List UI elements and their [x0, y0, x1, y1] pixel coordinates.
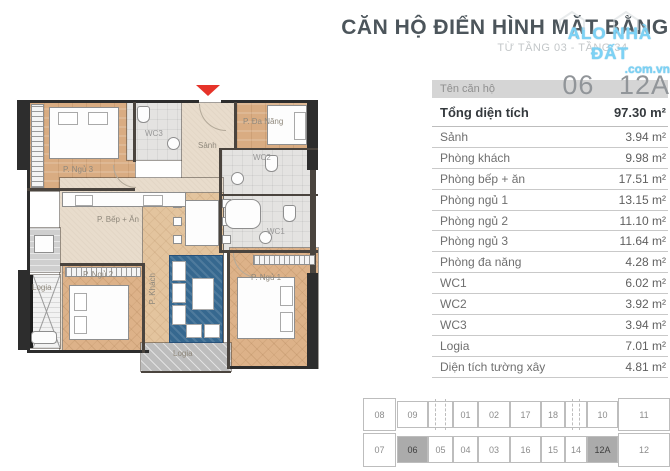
- table-row: Phòng khách9.98 m²: [432, 148, 668, 169]
- wall: [227, 250, 230, 369]
- wall: [27, 100, 199, 103]
- table-row: Phòng đa năng4.28 m²: [432, 252, 668, 273]
- dining-table: [185, 200, 219, 246]
- wardrobe: [31, 104, 44, 188]
- key-plan-cell: 07: [363, 433, 396, 467]
- chair: [173, 217, 182, 226]
- label-wc1: WC1: [267, 227, 285, 236]
- room-label: Phòng bếp + ăn: [440, 169, 525, 189]
- room-label: WC3: [440, 315, 467, 335]
- key-plan-cell: 12: [618, 433, 670, 467]
- table-row: WC16.02 m²: [432, 273, 668, 294]
- label-wc3: WC3: [145, 129, 163, 138]
- unit-number-2: 12A: [619, 72, 670, 99]
- key-plan-cell: 09: [397, 401, 428, 428]
- room-label: Phòng ngủ 1: [440, 190, 508, 210]
- watermark: ALO NHÀ ĐẤT .com.vn: [550, 24, 670, 76]
- key-plan-cell: 01: [453, 401, 478, 428]
- wall: [234, 102, 237, 150]
- table-row: Phòng ngủ 113.15 m²: [432, 190, 668, 211]
- key-plan-cell: 17: [510, 401, 541, 428]
- room-label: Phòng ngủ 2: [440, 211, 508, 231]
- wall: [27, 350, 149, 353]
- key-plan-cell: 12A: [587, 436, 618, 463]
- key-plan-cell: 06: [397, 436, 428, 463]
- key-plan-cell: 04: [453, 436, 478, 463]
- room-area: 9.98 m²: [625, 148, 666, 168]
- wall: [307, 273, 318, 369]
- sink: [167, 137, 180, 150]
- chair: [222, 235, 231, 244]
- bathtub: [225, 199, 261, 229]
- key-plan-cell: 11: [618, 398, 670, 431]
- label-bedroom-3: P. Ngủ 3: [63, 165, 93, 174]
- room-area: 4.81 m²: [625, 357, 666, 377]
- table-row: Diện tích tường xây4.81 m²: [432, 357, 668, 378]
- table-row: Phòng bếp + ăn17.51 m²: [432, 169, 668, 190]
- table-row: Phòng ngủ 311.64 m²: [432, 231, 668, 252]
- key-plan-corridor-cell: [565, 401, 587, 428]
- label-bedroom-2: P. Ngủ 2: [83, 270, 113, 279]
- room-label: Diện tích tường xây: [440, 357, 545, 377]
- label-logia-bottom: Logia: [173, 349, 193, 358]
- total-area-row: Tổng diện tích 97.30 m²: [432, 100, 668, 127]
- key-plan-cell: 05: [428, 436, 453, 463]
- toilet: [283, 205, 296, 222]
- washing-machine: [34, 235, 54, 253]
- room-label: Phòng khách: [440, 148, 510, 168]
- room-label: WC1: [440, 273, 467, 293]
- wall: [142, 263, 145, 353]
- label-multi-purpose: P. Đa Năng: [243, 117, 283, 126]
- room-area: 13.15 m²: [619, 190, 666, 210]
- room-label: WC2: [440, 294, 467, 314]
- key-plan-cell: 03: [478, 436, 510, 463]
- bed-double: [49, 107, 119, 159]
- key-plan-cell: 18: [541, 401, 565, 428]
- room-area: 11.10 m²: [620, 211, 666, 231]
- room-area: 3.94 m²: [625, 315, 666, 335]
- label-wc2: WC2: [253, 153, 271, 162]
- unit-number-1: 06: [562, 72, 594, 99]
- sofa: [169, 255, 223, 343]
- area-table: Sảnh3.94 m² Phòng khách9.98 m² Phòng bếp…: [432, 127, 668, 378]
- key-plan-cell: 16: [510, 436, 541, 463]
- total-area-value: 97.30 m²: [614, 100, 666, 126]
- bed-double: [237, 277, 295, 339]
- toilet: [137, 106, 150, 123]
- bed-double: [69, 285, 129, 340]
- label-logia-left: Logia: [32, 283, 52, 292]
- wall: [60, 263, 145, 266]
- key-plan-cell: 02: [478, 401, 510, 428]
- table-row: Logia7.01 m²: [432, 336, 668, 357]
- kitchen-counter: [62, 192, 186, 207]
- key-plan: 08 09 01 02 17 18 10 11 07 06 05 04 03 1…: [363, 396, 670, 467]
- floor-plan-page: CĂN HỘ ĐIỂN HÌNH MẶT BẰNG TỪ TẦNG 03 - T…: [0, 0, 670, 471]
- wall: [27, 188, 135, 191]
- wall: [227, 366, 318, 369]
- key-plan-cell: 15: [541, 436, 565, 463]
- room-area: 17.51 m²: [619, 169, 666, 189]
- room-area: 11.64 m²: [620, 231, 666, 251]
- ac-unit: [31, 331, 57, 344]
- label-hall: Sảnh: [198, 141, 217, 150]
- wall: [307, 100, 318, 170]
- key-plan-corridor-cell: [428, 401, 453, 428]
- wardrobe: [253, 255, 315, 265]
- wall: [141, 371, 231, 373]
- key-plan-cell: 10: [587, 401, 618, 428]
- table-row: WC33.94 m²: [432, 315, 668, 336]
- house-logo-icon: [552, 10, 662, 32]
- label-kitchen: P. Bếp + Ăn: [97, 215, 139, 224]
- unit-numbers: 06 12A: [432, 72, 670, 99]
- chair: [173, 235, 182, 244]
- room-area: 3.92 m²: [625, 294, 666, 314]
- room-area: 3.94 m²: [625, 127, 666, 147]
- key-plan-cell: 08: [363, 398, 396, 431]
- wall: [219, 194, 318, 196]
- label-bedroom-1: P. Ngủ 1: [251, 273, 281, 282]
- label-living: P. Khách: [148, 273, 157, 304]
- room-area: 6.02 m²: [625, 273, 666, 293]
- key-plan-cell: 14: [565, 436, 587, 463]
- watermark-domain: .com.vn: [550, 62, 670, 76]
- room-label: Sảnh: [440, 127, 468, 147]
- sink: [231, 172, 244, 185]
- room-area: 4.28 m²: [625, 252, 666, 272]
- table-row: WC23.92 m²: [432, 294, 668, 315]
- room-area: 7.01 m²: [625, 336, 666, 356]
- entrance-arrow-icon: [196, 85, 220, 96]
- room-label: Phòng đa năng: [440, 252, 521, 272]
- wall: [18, 270, 28, 350]
- wall: [219, 148, 318, 150]
- table-row: Sảnh3.94 m²: [432, 127, 668, 148]
- room-label: Phòng ngủ 3: [440, 231, 508, 251]
- floor-plan: P. Ngủ 3 WC3 Sảnh P. Đa Năng WC2 WC1 P. …: [15, 85, 430, 395]
- table-row: Phòng ngủ 211.10 m²: [432, 211, 668, 232]
- total-area-label: Tổng diện tích: [440, 100, 529, 126]
- room-label: Logia: [440, 336, 469, 356]
- wall: [133, 102, 136, 162]
